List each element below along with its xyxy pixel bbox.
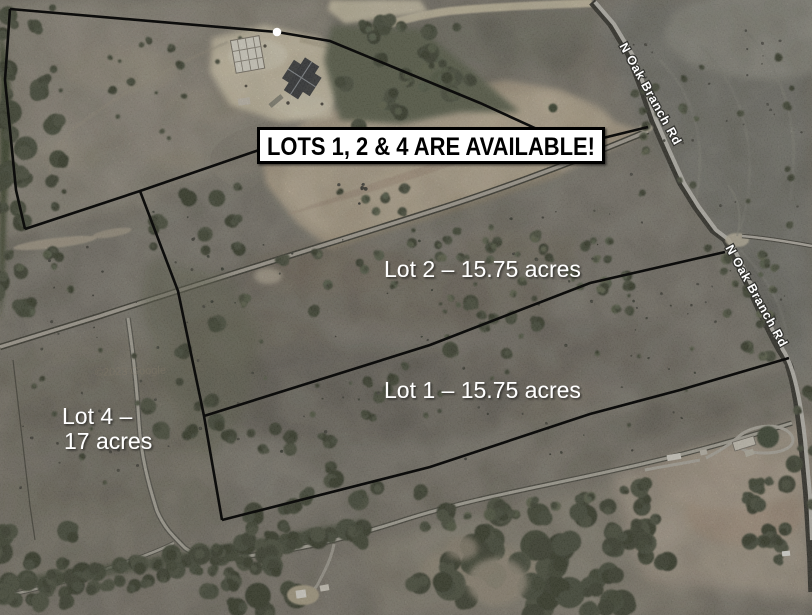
- svg-text:Lot 1 – 15.75 acres: Lot 1 – 15.75 acres: [384, 377, 581, 403]
- svg-text:Lot 2 – 15.75 acres: Lot 2 – 15.75 acres: [384, 256, 581, 282]
- svg-text:Lot 4 –: Lot 4 –: [62, 403, 133, 429]
- svg-text:©2023 Google: ©2023 Google: [95, 365, 166, 379]
- svg-text:LOTS 1, 2 & 4 ARE AVAILABLE!: LOTS 1, 2 & 4 ARE AVAILABLE!: [267, 133, 595, 161]
- svg-text:17 acres: 17 acres: [64, 428, 152, 454]
